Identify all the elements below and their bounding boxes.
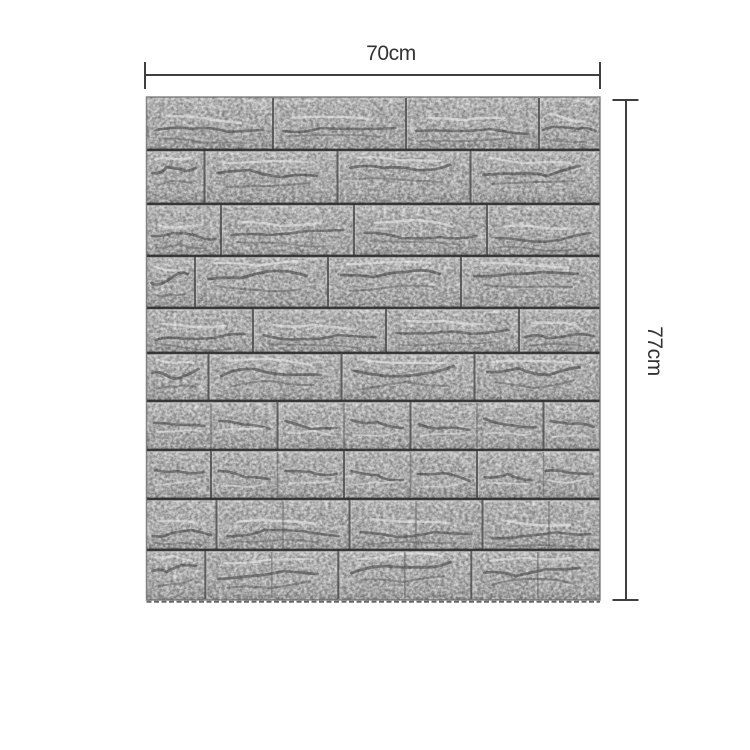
svg-text:70cm: 70cm bbox=[366, 42, 416, 65]
svg-text:77cm: 77cm bbox=[643, 326, 666, 376]
